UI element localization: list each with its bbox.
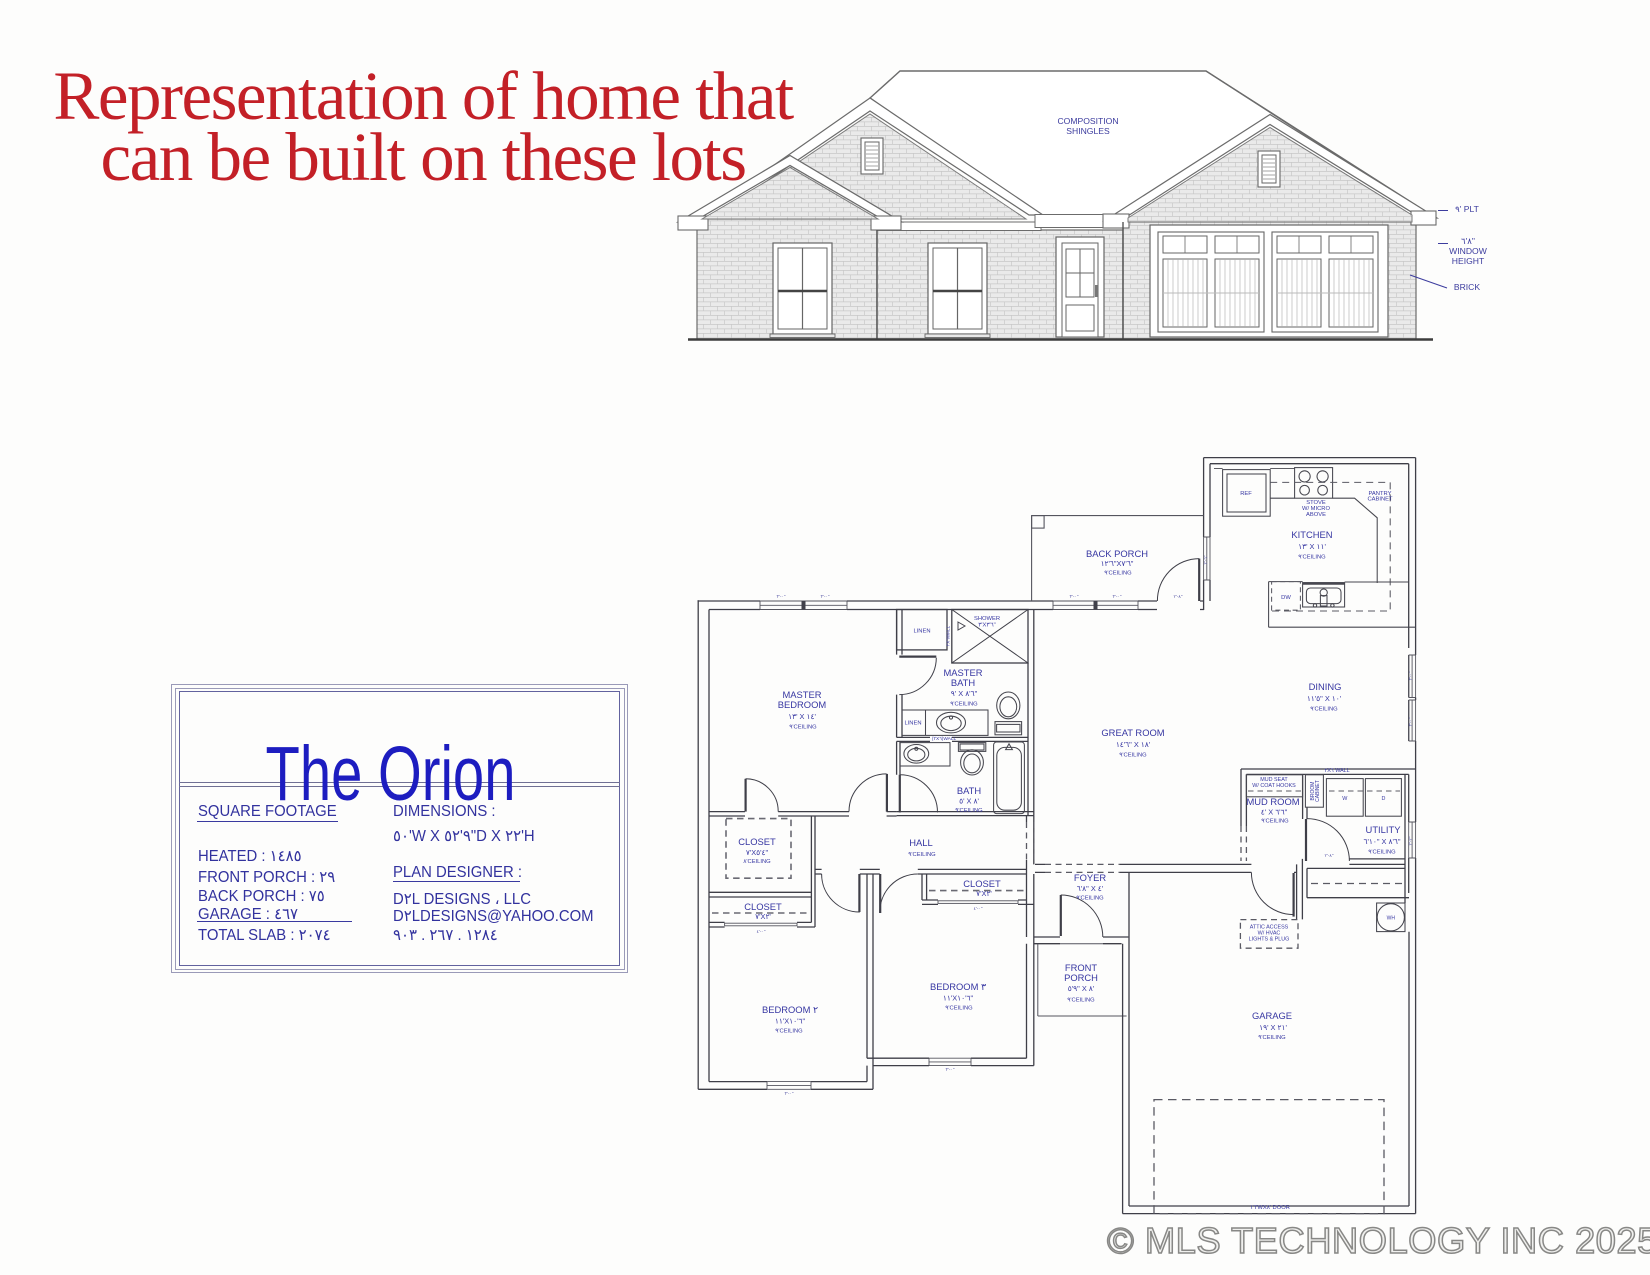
svg-text:GARAGE: GARAGE	[1252, 1010, 1292, 1021]
svg-text:١١'٥" X ١٠': ١١'٥" X ١٠'	[1307, 694, 1342, 703]
svg-text:٩'CEILING: ٩'CEILING	[945, 1006, 973, 1012]
svg-text:BATH: BATH	[951, 677, 975, 688]
svg-text:٩'CEILING: ٩'CEILING	[1104, 571, 1132, 577]
svg-text:FOYER: FOYER	[1074, 872, 1107, 883]
svg-text:٩'CEILING: ٩'CEILING	[1067, 998, 1095, 1004]
svg-text:٩'CEILING: ٩'CEILING	[1298, 555, 1326, 561]
svg-text:MUD ROOM: MUD ROOM	[1246, 796, 1299, 807]
svg-text:UTILITY: UTILITY	[1366, 824, 1402, 835]
svg-text:PORCH: PORCH	[1064, 972, 1098, 983]
svg-text:ABOVE: ABOVE	[1306, 512, 1326, 518]
svg-text:BEDROOM: BEDROOM	[778, 699, 827, 710]
svg-text:٩'CEILING: ٩'CEILING	[1261, 819, 1289, 825]
svg-text:٩'CEILING: ٩'CEILING	[950, 702, 978, 708]
svg-text:٧'X٢': ٧'X٢'	[976, 889, 992, 898]
svg-text:٣'-٠": ٣'-٠"	[1408, 671, 1413, 680]
svg-text:٧'X٢': ٧'X٢'	[755, 912, 771, 921]
svg-text:LIGHTS & PLUG: LIGHTS & PLUG	[1249, 937, 1290, 943]
svg-text:(٢X٦)WALL: (٢X٦)WALL	[932, 736, 957, 742]
svg-text:٩'CEILING: ٩'CEILING	[1119, 753, 1147, 759]
svg-text:٢'-٨": ٢'-٨"	[1174, 594, 1183, 599]
svg-text:٧'X٥'٤": ٧'X٥'٤"	[746, 848, 769, 857]
svg-text:٩'CEILING: ٩'CEILING	[1076, 896, 1104, 902]
svg-text:CLOSET: CLOSET	[963, 878, 1001, 889]
svg-text:CABINET: CABINET	[1367, 497, 1393, 503]
svg-text:D: D	[1381, 796, 1385, 802]
svg-text:٣'-٠": ٣'-٠"	[821, 594, 830, 599]
svg-text:W: W	[1342, 796, 1348, 802]
svg-text:٩'CEILING: ٩'CEILING	[775, 1029, 803, 1035]
svg-text:DINING: DINING	[1309, 681, 1342, 692]
svg-text:٢'-٦": ٢'-٦"	[1203, 555, 1208, 564]
svg-text:٥'٩" X ٨': ٥'٩" X ٨'	[1068, 984, 1095, 993]
svg-text:٦'١٠" X ٨'٦": ٦'١٠" X ٨'٦"	[1364, 837, 1401, 846]
svg-text:٣'-٠": ٣'-٠"	[777, 594, 786, 599]
svg-text:٤' X ٦'٦": ٤' X ٦'٦"	[1261, 808, 1288, 817]
svg-text:WH: WH	[1387, 916, 1396, 922]
svg-text:٥' X ٨': ٥' X ٨'	[959, 797, 979, 806]
svg-text:٣'-٠": ٣'-٠"	[785, 1091, 794, 1096]
svg-text:٨'CEILING: ٨'CEILING	[743, 859, 771, 865]
svg-text:٢X٦ WALL: ٢X٦ WALL	[1324, 768, 1349, 774]
svg-text:١٦'WX٨' DOOR: ١٦'WX٨' DOOR	[1250, 1205, 1290, 1211]
svg-text:٩'CEILING: ٩'CEILING	[908, 852, 936, 858]
svg-text:W/ COAT HOOKS: W/ COAT HOOKS	[1252, 783, 1296, 789]
svg-text:GREAT ROOM: GREAT ROOM	[1101, 727, 1164, 738]
svg-text:KITCHEN: KITCHEN	[1291, 529, 1332, 540]
svg-text:LINEN: LINEN	[913, 629, 930, 635]
svg-text:١٤'٦" X ١٨': ١٤'٦" X ١٨'	[1116, 740, 1151, 749]
svg-text:٣'X٣'٦": ٣'X٣'٦"	[978, 623, 995, 629]
svg-text:٤'-٠": ٤'-٠"	[974, 906, 983, 911]
svg-text:٢X٦WALL: ٢X٦WALL	[946, 625, 951, 646]
svg-text:HALL: HALL	[909, 837, 932, 848]
svg-text:٦'٨" X ٤': ٦'٨" X ٤'	[1077, 884, 1104, 893]
svg-text:١٢'٦"X٧'٦": ١٢'٦"X٧'٦"	[1101, 559, 1134, 568]
svg-text:١١'X١٠'٦": ١١'X١٠'٦"	[943, 994, 974, 1003]
svg-text:٩' X ٨'٦": ٩' X ٨'٦"	[951, 689, 978, 698]
svg-text:CABINET: CABINET	[1315, 780, 1321, 802]
svg-text:٣'-٠": ٣'-٠"	[1113, 594, 1122, 599]
svg-text:١٣' X ١٤': ١٣' X ١٤'	[788, 712, 816, 721]
svg-text:٩'CEILING: ٩'CEILING	[789, 725, 817, 731]
svg-text:BEDROOM ٣: BEDROOM ٣	[930, 981, 986, 992]
svg-text:LINEN: LINEN	[904, 721, 921, 727]
svg-text:٣'-٠": ٣'-٠"	[1070, 594, 1079, 599]
svg-text:BEDROOM ٢: BEDROOM ٢	[762, 1004, 818, 1015]
svg-text:CLOSET: CLOSET	[744, 901, 782, 912]
svg-text:٤'-٠": ٤'-٠"	[757, 929, 766, 934]
svg-text:٩'CEILING: ٩'CEILING	[1368, 850, 1396, 856]
svg-text:١١'X١٠'٦": ١١'X١٠'٦"	[775, 1017, 806, 1026]
svg-text:١٩' X ٢١': ١٩' X ٢١'	[1259, 1023, 1287, 1032]
svg-text:DW: DW	[1281, 595, 1291, 601]
svg-text:٩'CEILING: ٩'CEILING	[955, 808, 983, 814]
svg-text:REF: REF	[1240, 491, 1252, 497]
svg-text:٣'-٠": ٣'-٠"	[1408, 717, 1413, 726]
svg-text:١٣' X ١١': ١٣' X ١١'	[1298, 542, 1326, 551]
svg-text:CLOSET: CLOSET	[738, 836, 776, 847]
svg-text:٢'-٨": ٢'-٨"	[1325, 853, 1334, 858]
svg-text:٣'-٠": ٣'-٠"	[946, 1067, 955, 1072]
svg-text:BATH: BATH	[957, 785, 981, 796]
svg-text:٩'CEILING: ٩'CEILING	[1310, 707, 1338, 713]
svg-text:٢'-٢": ٢'-٢"	[1408, 836, 1413, 845]
svg-text:BACK PORCH: BACK PORCH	[1086, 548, 1148, 559]
svg-text:٩'CEILING: ٩'CEILING	[1258, 1035, 1286, 1041]
svg-text:SHOWER: SHOWER	[974, 616, 1000, 622]
